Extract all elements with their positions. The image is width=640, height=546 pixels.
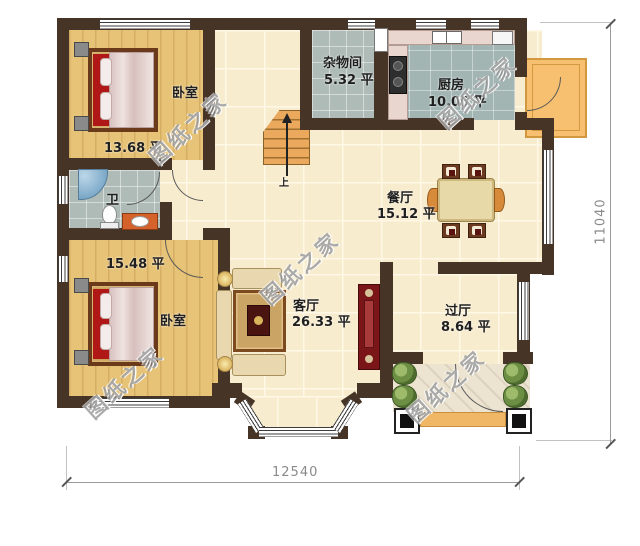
- dining-table: [437, 178, 495, 222]
- dining-chair-1: [442, 164, 460, 179]
- living-area: 26.33 平: [292, 311, 351, 330]
- vanity-sink: [131, 216, 149, 227]
- wall-kitchen-bottom-right: [515, 118, 554, 130]
- sofa-left: [216, 290, 232, 360]
- bedroom2-label: 卧室: [160, 310, 186, 329]
- window-kitchen-top-2: [471, 19, 499, 29]
- wall-living-bottom-right: [357, 383, 393, 398]
- bed2-pillow-2: [100, 324, 112, 350]
- window-bedroom1-top: [100, 19, 190, 29]
- dim-ext-right-top: [540, 22, 612, 23]
- porch-plant-3: [503, 362, 528, 385]
- bedroom2-area: 15.48 平: [106, 253, 165, 272]
- bed1-pillow-2: [100, 92, 112, 120]
- tv-cabinet-item-1: [365, 289, 373, 297]
- dim-ext-bottom-left: [66, 446, 67, 490]
- dim-ext-bottom-right: [519, 446, 520, 490]
- kitchen-sink-divider: [446, 31, 447, 44]
- bed2-pillow-1: [100, 293, 112, 319]
- dim-line-right: [610, 24, 611, 444]
- stove-burner-2: [393, 77, 403, 87]
- wall-tv: [380, 262, 393, 385]
- dim-ext-right-bottom: [536, 440, 612, 441]
- dim-height-text: 11040: [594, 198, 609, 244]
- hall-area: 8.64 平: [441, 316, 491, 335]
- dining-area: 15.12 平: [377, 203, 436, 222]
- fridge: [492, 31, 513, 45]
- bed1-pillow-1: [100, 58, 112, 86]
- porch-plant-1: [392, 362, 417, 385]
- toilet-tank: [100, 222, 119, 229]
- bed1-nightstand-1: [74, 42, 89, 57]
- wall-storage-bottom: [300, 118, 388, 130]
- dining-chair-2: [468, 164, 486, 179]
- window-hall-right: [518, 282, 529, 340]
- kitchen-sink: [432, 31, 462, 44]
- tv-screen: [364, 300, 374, 348]
- porch-column-right: [506, 408, 532, 434]
- sofa-bottom: [232, 354, 286, 376]
- window-bathroom-left: [58, 176, 68, 204]
- bed1-nightstand-2: [74, 116, 89, 131]
- bed2-nightstand-1: [74, 278, 89, 293]
- dim-width-text: 12540: [272, 465, 318, 480]
- stairs-up-label: 上: [279, 174, 289, 189]
- window-storage-top: [348, 19, 375, 29]
- porch-plant-4: [503, 385, 528, 408]
- dining-side-chair-right: [494, 188, 505, 212]
- dim-line-bottom: [66, 482, 520, 483]
- tv-cabinet-item-2: [365, 355, 373, 363]
- floor-lamp-1: [217, 271, 233, 287]
- floor-lamp-2: [217, 356, 233, 372]
- dining-chair-3: [442, 223, 460, 238]
- wall-storage-left: [300, 18, 312, 130]
- storage-door-leaf: [374, 28, 388, 52]
- coffee-table-ornament: [254, 316, 263, 325]
- bed1-duvet: [109, 52, 154, 128]
- storage-area: 5.32 平: [324, 69, 374, 88]
- bed2-nightstand-2: [74, 350, 89, 365]
- wall-left: [57, 18, 69, 408]
- stairs-arrow-head: [282, 113, 292, 123]
- bay-window-bottom: [259, 427, 338, 437]
- wall-dining-hall-divider: [438, 262, 554, 274]
- floor-plan: 上: [0, 0, 640, 546]
- stairs-arrow-stem: [286, 122, 288, 176]
- stove-burner-1: [393, 61, 403, 71]
- dining-chair-4: [468, 223, 486, 238]
- bathroom-label: 卫: [106, 189, 119, 208]
- bedroom1-label: 卧室: [172, 82, 198, 101]
- window-kitchen-top-1: [416, 19, 446, 29]
- window-dining-right: [543, 150, 553, 244]
- window-bedroom2-left: [58, 256, 68, 282]
